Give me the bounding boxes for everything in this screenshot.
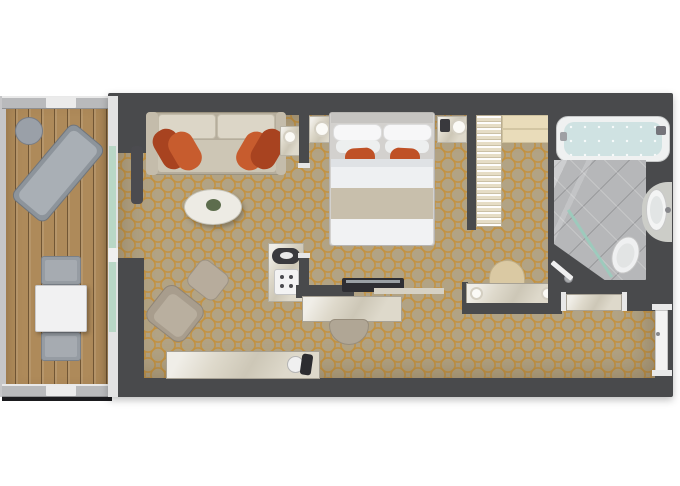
sink-faucet bbox=[665, 207, 671, 213]
bed-headboard bbox=[331, 113, 433, 123]
hall-console-jamb-right bbox=[622, 292, 627, 311]
bathtub-water bbox=[564, 122, 662, 156]
balcony-shadow bbox=[2, 397, 112, 401]
espresso-dot-1 bbox=[280, 275, 284, 279]
sink-basin bbox=[650, 196, 663, 224]
nightstand-right-lamp bbox=[451, 119, 467, 135]
sofa-side-lamp bbox=[283, 130, 297, 144]
partition-upper bbox=[299, 115, 309, 163]
bed-pillow-back-left bbox=[333, 124, 382, 141]
balcony-glass-mullion bbox=[108, 248, 118, 262]
espresso-dot-4 bbox=[289, 284, 293, 288]
tv-screen bbox=[346, 280, 400, 283]
entry-door-jamb-bottom bbox=[652, 370, 672, 376]
curtain bbox=[131, 146, 143, 204]
bathtub-handle bbox=[560, 132, 567, 141]
vanity-wall-bottom bbox=[462, 303, 562, 314]
closet-cabinet-seam bbox=[502, 128, 550, 130]
bed-runner bbox=[331, 188, 433, 219]
bedroom-door-jamb-top bbox=[298, 163, 310, 168]
balcony-side-table bbox=[15, 117, 43, 145]
bed-duvet-fold bbox=[331, 159, 433, 167]
balcony-glass-pane bbox=[109, 146, 116, 332]
dining-chair-bottom-pad bbox=[45, 336, 77, 357]
bathtub-faucet bbox=[656, 126, 666, 135]
media-shelf bbox=[374, 288, 444, 294]
entry-door bbox=[655, 310, 668, 372]
wall-bottom-left-chunk bbox=[118, 258, 144, 378]
vanity-lamp-left bbox=[470, 287, 483, 300]
espresso-dot-2 bbox=[289, 275, 293, 279]
suite-floor-plan bbox=[0, 0, 680, 486]
dining-chair-top-pad bbox=[45, 260, 77, 281]
bed-foot-throw bbox=[331, 219, 433, 245]
balcony-bottom-rail-panel bbox=[46, 385, 76, 396]
bed-pillow-back-right bbox=[383, 124, 432, 141]
dining-table bbox=[35, 285, 87, 332]
nightstand-left-lamp bbox=[314, 121, 330, 137]
nightstand-phone bbox=[440, 119, 450, 132]
closet-wall-left bbox=[467, 115, 476, 230]
entry-door-handle bbox=[656, 332, 660, 336]
balcony-left-rail bbox=[0, 96, 6, 397]
kettle-lid bbox=[280, 252, 293, 259]
hall-console bbox=[566, 294, 622, 311]
coffee-table-plant bbox=[206, 199, 221, 211]
closet-hanging-rail bbox=[476, 115, 502, 227]
balcony-top-rail-panel bbox=[46, 97, 76, 108]
espresso-dot-3 bbox=[280, 284, 284, 288]
